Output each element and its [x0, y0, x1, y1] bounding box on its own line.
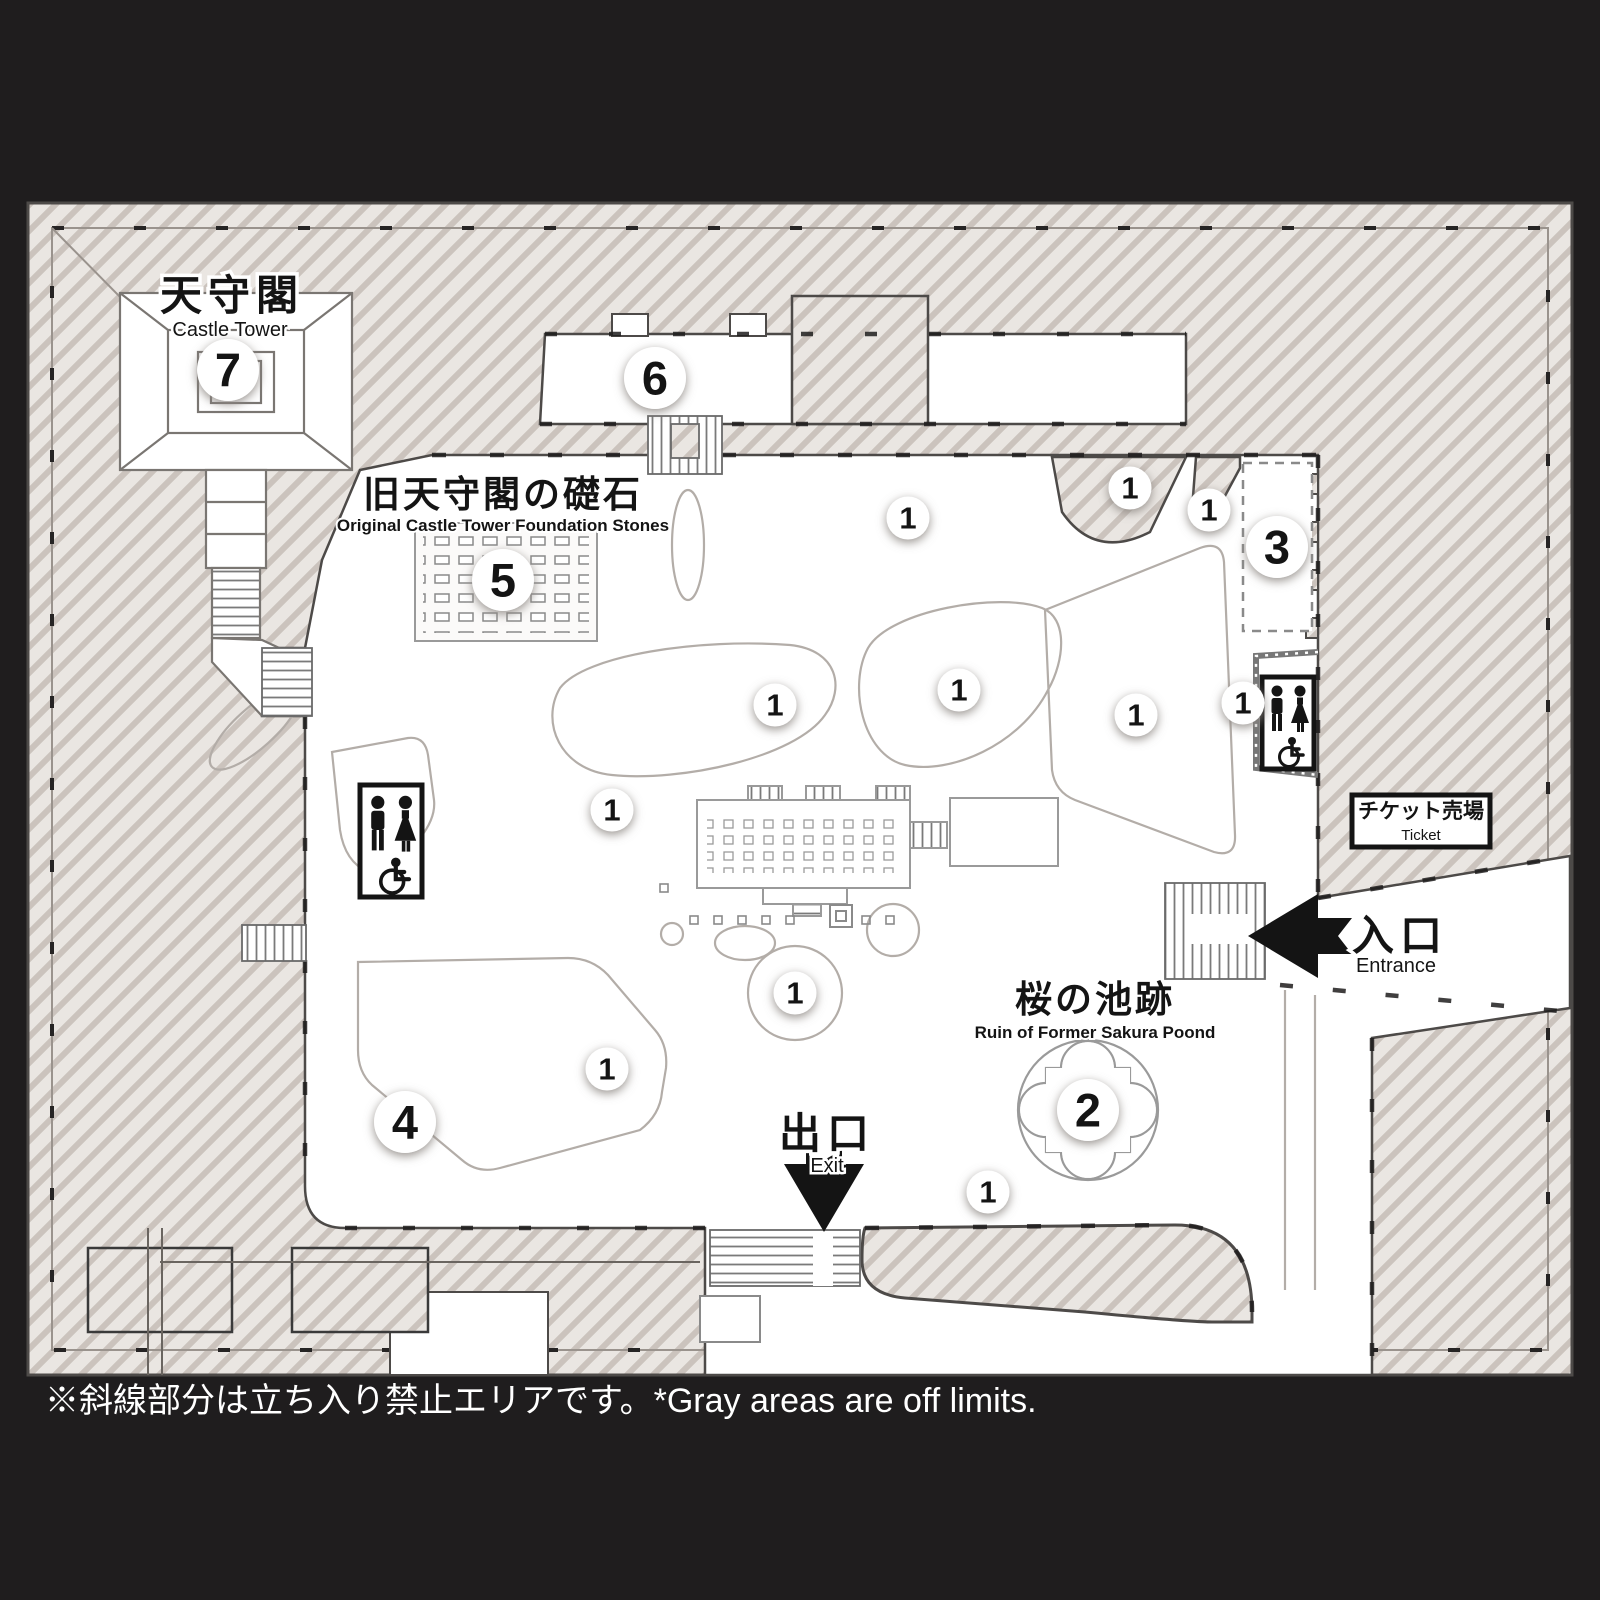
ticket-booth: チケット売場 Ticket: [1352, 795, 1490, 847]
svg-text:1: 1: [766, 688, 783, 723]
svg-text:1: 1: [1121, 471, 1138, 506]
svg-text:1: 1: [1234, 686, 1251, 721]
poi-marker-1: 1: [967, 1171, 1010, 1214]
poi-marker-7: 7: [197, 339, 259, 401]
exit-stairs: [710, 1230, 860, 1286]
svg-text:5: 5: [490, 554, 516, 607]
svg-text:1: 1: [1127, 698, 1144, 733]
poi-marker-4: 4: [374, 1091, 436, 1153]
poi-marker-1: 1: [938, 669, 981, 712]
off-limits-note: ※斜線部分は立ち入り禁止エリアです。*Gray areas are off li…: [45, 1382, 1037, 1420]
ticket-label-jp: チケット売場: [1358, 800, 1484, 823]
svg-text:1: 1: [1200, 493, 1217, 528]
poi-marker-5: 5: [472, 549, 534, 611]
west-lower-stairs: [242, 925, 306, 961]
castle-tower-label-jp: 天守閣: [160, 272, 304, 319]
outbuilding-rect: [292, 1248, 428, 1332]
poi-marker-6: 6: [624, 347, 686, 409]
svg-text:6: 6: [642, 352, 668, 405]
svg-text:1: 1: [979, 1175, 996, 1210]
svg-text:1: 1: [786, 976, 803, 1011]
entrance-label-en: Entrance: [1356, 955, 1436, 977]
poi-marker-1: 1: [887, 497, 930, 540]
poi-marker-1: 1: [774, 972, 817, 1015]
outbuilding-rect: [88, 1248, 232, 1332]
white-rect-below-exit: [700, 1296, 760, 1342]
exit-label-en: Exit: [810, 1155, 844, 1177]
poi-marker-1: 1: [1222, 682, 1265, 725]
pond-label-en: Ruin of Former Sakura Poond: [975, 1023, 1216, 1042]
poi-marker-2: 2: [1057, 1079, 1119, 1141]
poi-marker-1: 1: [586, 1048, 629, 1091]
svg-text:4: 4: [392, 1096, 418, 1149]
poi-marker-3: 3: [1246, 516, 1308, 578]
poi-marker-1: 1: [1115, 694, 1158, 737]
svg-text:1: 1: [899, 501, 916, 536]
toilet-left: [360, 785, 422, 897]
poi-marker-1: 1: [1109, 467, 1152, 510]
svg-text:7: 7: [215, 344, 241, 397]
toilet-right: [1262, 677, 1314, 769]
poi-marker-1: 1: [1188, 489, 1231, 532]
entrance-label-jp: 入口: [1352, 912, 1448, 959]
svg-text:1: 1: [603, 793, 620, 828]
map-canvas: チケット売場 Ticket 天守閣 Castle Tower 旧天守閣の礎石 O…: [0, 0, 1600, 1600]
castle-tower-label-en: Castle Tower: [172, 319, 288, 341]
west-stairs: [262, 648, 312, 716]
ticket-label-en: Ticket: [1401, 827, 1441, 844]
foundation-label-en: Original Castle Tower Foundation Stones: [337, 516, 669, 535]
svg-text:3: 3: [1264, 521, 1290, 574]
poi-marker-1: 1: [754, 684, 797, 727]
exit-label-jp: 出口: [779, 1110, 875, 1157]
svg-text:1: 1: [950, 673, 967, 708]
svg-text:2: 2: [1075, 1084, 1101, 1137]
foundation-label-jp: 旧天守閣の礎石: [363, 474, 643, 515]
castle-map-page: チケット売場 Ticket 天守閣 Castle Tower 旧天守閣の礎石 O…: [0, 0, 1600, 1600]
poi-marker-1: 1: [591, 789, 634, 832]
svg-text:1: 1: [598, 1052, 615, 1087]
pond-label-jp: 桜の池跡: [1015, 979, 1175, 1020]
